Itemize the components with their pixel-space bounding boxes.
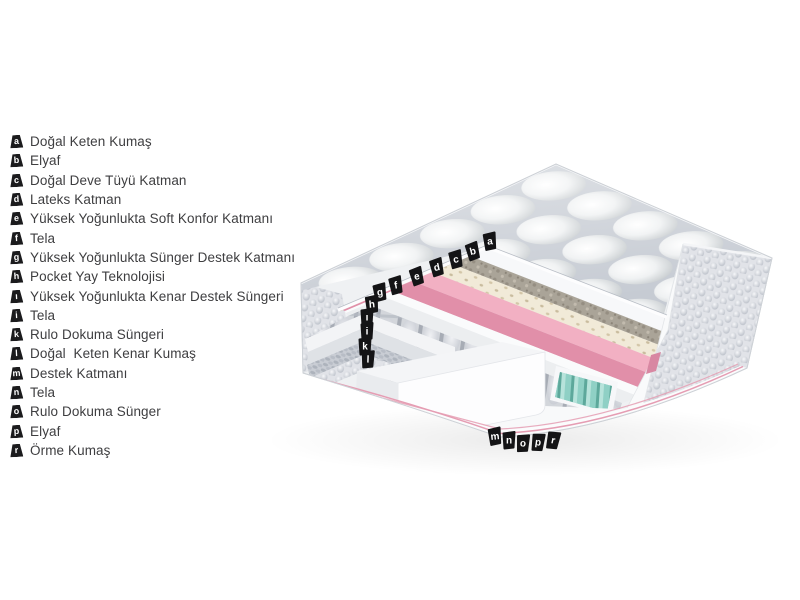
svg-text:n: n — [506, 436, 512, 447]
mattress-marker-m: m — [489, 427, 502, 445]
svg-text:i: i — [366, 327, 369, 338]
svg-text:m: m — [490, 431, 500, 443]
mattress-marker-a: a — [484, 232, 497, 250]
mattress-cutaway-illustration: a b c d e f g h ı i k l m n o p r — [0, 0, 800, 600]
mattress-marker-p: p — [532, 433, 545, 451]
mattress-marker-n: n — [504, 432, 515, 449]
svg-text:ı: ı — [366, 313, 369, 324]
mattress-marker-l: l — [362, 351, 374, 368]
mattress-marker-o: o — [517, 435, 529, 452]
mattress-marker-i: i — [362, 323, 373, 340]
svg-text:o: o — [520, 438, 527, 449]
